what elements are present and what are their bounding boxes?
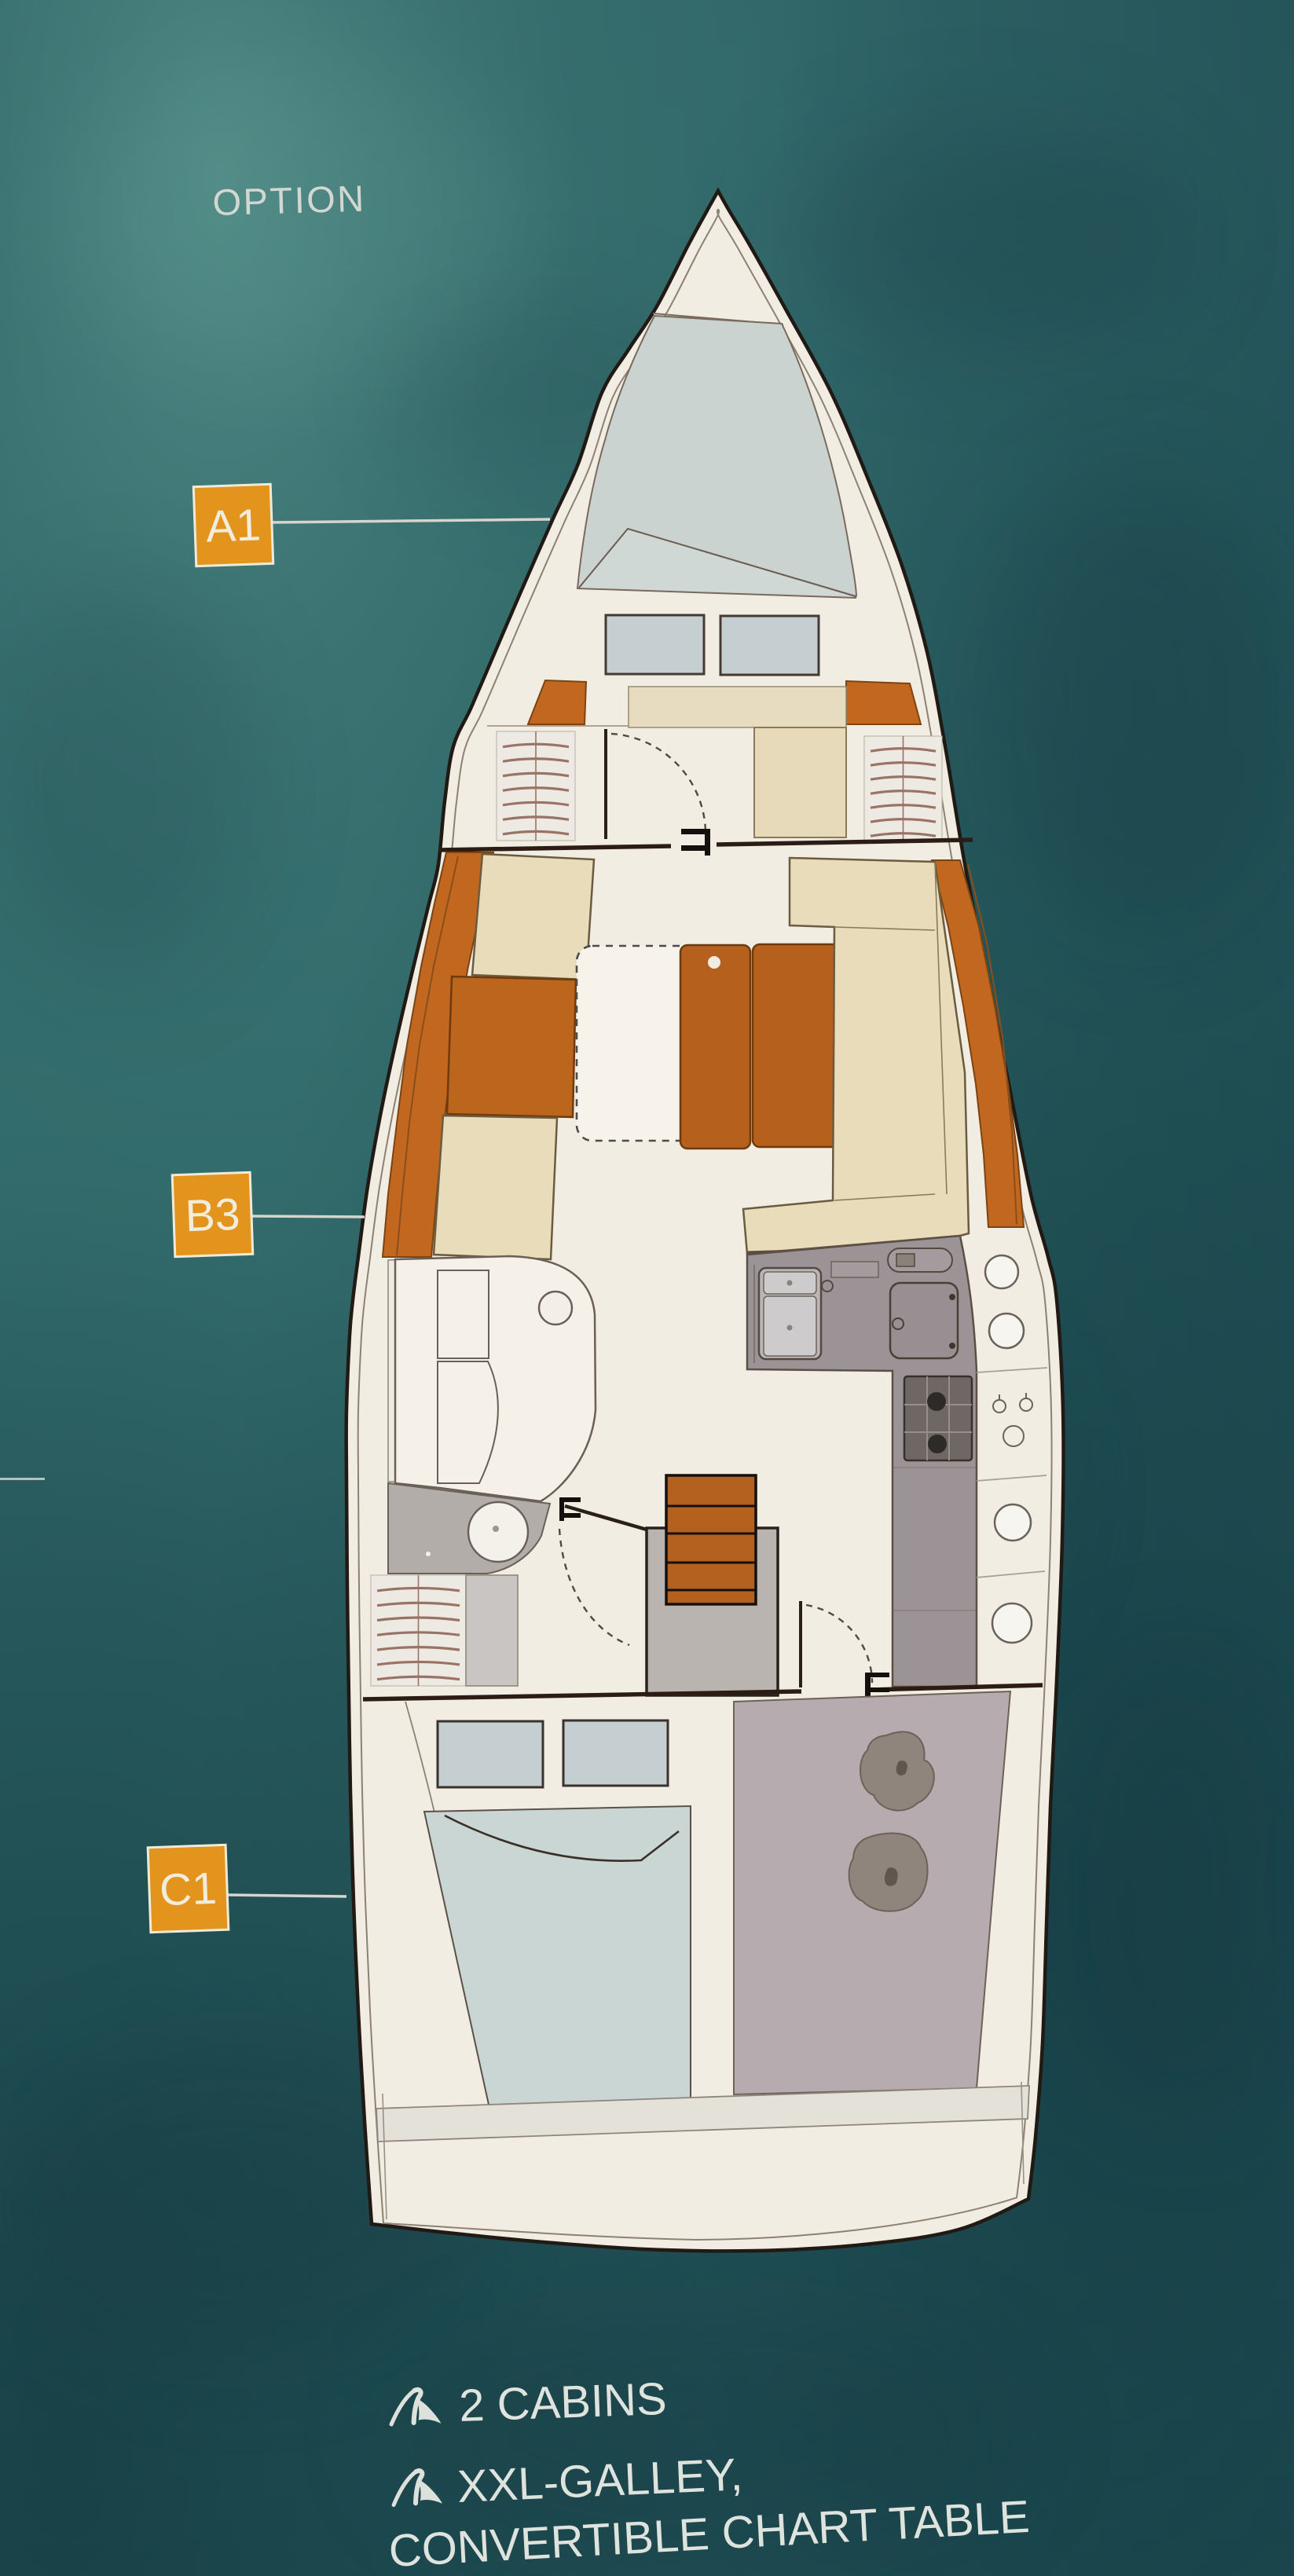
svg-text:OPTION: OPTION <box>212 178 367 223</box>
svg-text:2 CABINS: 2 CABINS <box>458 2373 667 2431</box>
svg-text:C1: C1 <box>159 1863 218 1916</box>
svg-text:A1: A1 <box>205 500 262 551</box>
svg-text:B3: B3 <box>185 1189 241 1241</box>
